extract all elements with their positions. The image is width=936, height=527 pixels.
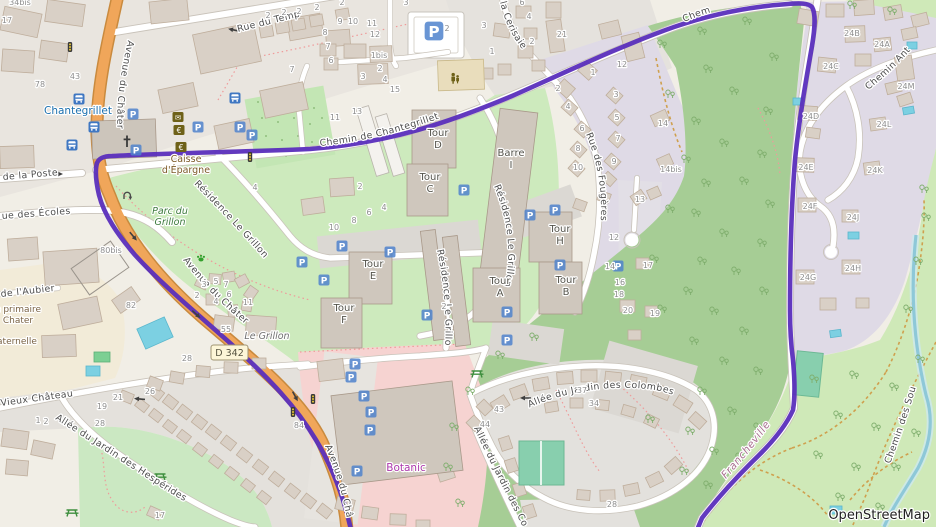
house-number: 5 <box>614 113 619 122</box>
house-number: 4 <box>526 12 531 21</box>
house-number: 2 <box>377 64 382 73</box>
svg-text:€: € <box>177 126 182 135</box>
house-number: 1 <box>590 68 595 77</box>
house-number: 6 <box>519 0 524 7</box>
house-number: 19 <box>650 309 660 318</box>
house-number: 8 <box>351 216 356 225</box>
house-number: 26 <box>145 387 155 396</box>
attribution-link[interactable]: OpenStreetMap <box>828 508 930 523</box>
house-number: 18 <box>614 290 624 299</box>
house-number: 55 <box>221 325 231 334</box>
house-number: 19 <box>97 402 107 411</box>
house-number: 11 <box>243 298 253 307</box>
house-number: 2 <box>357 182 362 191</box>
house-number: 84 <box>294 421 304 430</box>
house-number: 16 <box>615 278 625 287</box>
svg-text:✉: ✉ <box>175 113 181 122</box>
house-number: 17 <box>2 16 12 25</box>
house-number: 2 <box>441 302 446 311</box>
house-number: 6 <box>226 290 231 299</box>
house-number: 14 <box>658 119 668 128</box>
house-number: 24G <box>800 273 816 282</box>
house-number: 6 <box>328 56 333 65</box>
house-number: 7 <box>289 65 294 74</box>
svg-text:€: € <box>179 143 184 152</box>
house-number: 34 <box>589 399 599 408</box>
road-ref-text: D 342 <box>215 348 243 359</box>
house-number: 12 <box>609 233 619 242</box>
house-number: 14 <box>605 262 615 271</box>
house-number: 17 <box>155 511 165 520</box>
house-number: 24A <box>874 40 890 49</box>
house-number: 28 <box>182 354 192 363</box>
house-number: 6 <box>366 208 371 217</box>
house-number: 9 <box>611 157 616 166</box>
road-ref-badge: D 342 <box>211 345 248 360</box>
house-number: 37 <box>577 386 587 395</box>
house-number: 11 <box>330 113 340 122</box>
place-label: Parc duGrillon <box>152 206 188 228</box>
house-number: 21 <box>557 30 567 39</box>
house-number: 4 <box>565 102 570 111</box>
house-number: 34bis <box>9 0 31 7</box>
house-number: 6 <box>579 124 584 133</box>
house-number: 10 <box>329 223 339 232</box>
house-number: 2 <box>194 291 199 300</box>
house-number: 28 <box>607 500 617 509</box>
house-number: 78 <box>35 80 45 89</box>
house-number: 2 <box>265 11 270 20</box>
house-number: 24K <box>867 166 883 175</box>
house-number: 11 <box>367 19 377 28</box>
house-number: 9 <box>337 17 342 26</box>
house-number: 12 <box>617 60 627 69</box>
house-number: 2 <box>444 24 449 33</box>
house-number: 17 <box>643 261 653 270</box>
house-number: 24D <box>803 112 819 121</box>
house-number: 24F <box>803 202 818 211</box>
house-number: 4 <box>213 297 218 306</box>
house-number: 12 <box>370 30 380 39</box>
house-number: 7 <box>615 134 620 143</box>
house-number: 8 <box>575 144 580 153</box>
house-number: 10 <box>348 17 358 26</box>
house-number: 8 <box>322 28 327 37</box>
house-number: 2 <box>281 8 286 17</box>
house-number: 5 <box>213 277 218 286</box>
place-label: Le Grillon <box>244 331 289 342</box>
house-number: 2 <box>296 7 301 16</box>
house-number: 1 <box>489 47 494 56</box>
house-number: 43 <box>494 405 504 414</box>
house-number: 15 <box>390 85 400 94</box>
house-number: 3 <box>403 0 408 7</box>
house-number: 28 <box>95 419 105 428</box>
house-number: 2 <box>314 3 319 12</box>
house-number: 2 <box>43 417 48 426</box>
house-number: 44 <box>480 420 490 429</box>
map-viewport[interactable]: P <box>0 0 936 527</box>
house-number: 3 <box>201 280 206 289</box>
house-number: 3 <box>360 72 365 81</box>
house-number: 10 <box>573 163 583 172</box>
house-number: 24E <box>798 163 813 172</box>
house-number: 3 <box>613 90 618 99</box>
house-number: 1bis <box>371 51 388 60</box>
house-number: 20 <box>623 306 633 315</box>
house-number: 2 <box>529 37 534 46</box>
house-number: 80bis <box>100 246 122 255</box>
house-number: 24H <box>845 264 861 273</box>
house-number: 1 <box>35 416 40 425</box>
house-number: 2 <box>339 0 344 7</box>
house-number: 43 <box>70 72 80 81</box>
house-number: 24B <box>844 29 860 38</box>
house-number: 13 <box>635 195 645 204</box>
map-canvas[interactable]: P <box>0 0 936 527</box>
house-number: 7 <box>325 42 330 51</box>
house-number: 24J <box>847 213 860 222</box>
house-number: 7 <box>223 280 228 289</box>
house-number: 24L <box>877 120 892 129</box>
house-number: 24C <box>823 62 839 71</box>
house-number: 4 <box>382 75 387 84</box>
place-label: Chantegrillet <box>44 105 112 117</box>
house-number: 14bis <box>660 165 682 174</box>
house-number: 4 <box>252 183 257 192</box>
house-number: 4 <box>381 203 386 212</box>
house-number: 82 <box>126 301 136 310</box>
place-label: aternelle <box>0 337 37 347</box>
house-number: 3 <box>481 21 486 30</box>
place-label: Botanic <box>386 462 426 474</box>
house-number: 21 <box>113 393 123 402</box>
house-number: 13 <box>352 107 362 116</box>
house-number: 24M <box>897 82 914 91</box>
house-number: 2 <box>555 84 560 93</box>
